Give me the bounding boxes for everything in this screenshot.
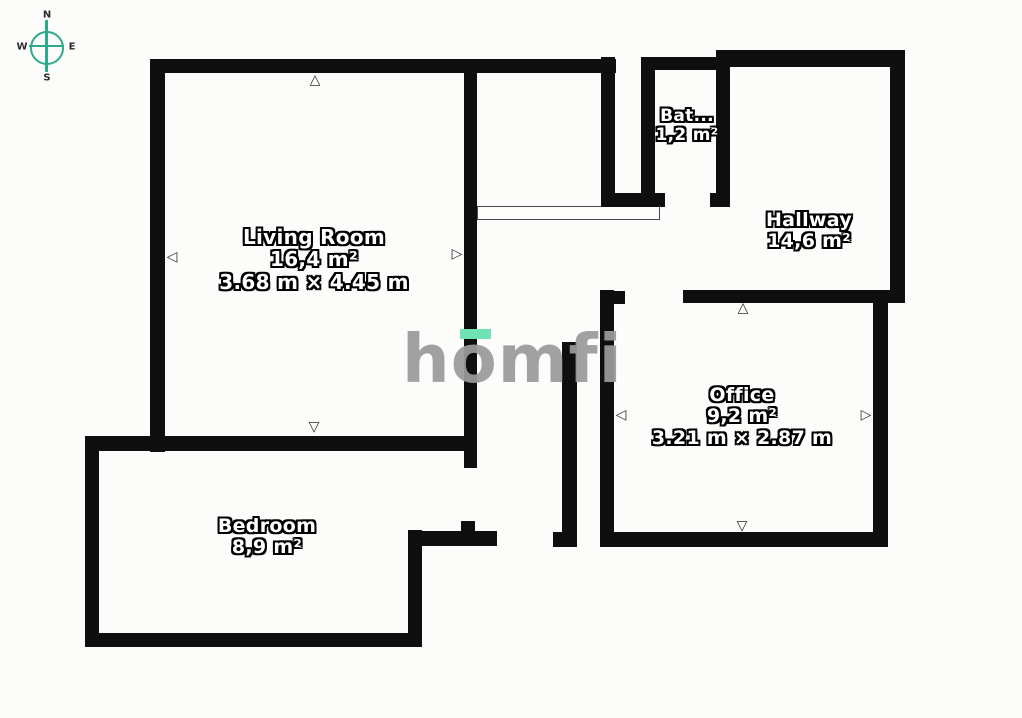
wall-living-room-right: [464, 73, 477, 468]
wall-living-room-bottom: [85, 436, 477, 451]
wall-bathroom-block-left: [601, 57, 615, 207]
room-area: 9,2 m²: [652, 406, 832, 427]
hallway-label: Hallway 14,6 m²: [766, 210, 852, 253]
room-dimensions: 3.68 m × 4.45 m: [219, 271, 408, 293]
office-label: Office 9,2 m² 3.21 m × 2.87 m: [652, 385, 832, 449]
wall-office-right: [873, 290, 888, 547]
homfi-logo: homfi: [402, 326, 623, 393]
wall-hallway-right: [890, 50, 905, 303]
room-name: Office: [652, 385, 832, 406]
room-name: Living Room: [219, 226, 408, 248]
marker-left-icon: ◁: [616, 408, 627, 422]
room-name: Bedroom: [218, 516, 316, 537]
bathroom-label: Bat... 1,2 m²: [656, 107, 719, 145]
room-area: 1,2 m²: [656, 126, 719, 145]
compass-east-label: E: [69, 42, 76, 53]
wall-office-bottom: [600, 532, 888, 547]
wall-corridor-foot: [553, 532, 577, 547]
room-name: Bat...: [656, 107, 719, 126]
closet-outline: [477, 206, 660, 220]
living-room-label: Living Room 16,4 m² 3.68 m × 4.45 m: [219, 226, 408, 293]
room-area: 16,4 m²: [219, 248, 408, 270]
wall-bedroom-right: [408, 530, 422, 647]
compass-ring: [30, 31, 64, 65]
compass-west-label: W: [16, 42, 27, 53]
wall-hallway-top: [723, 50, 905, 67]
room-dimensions: 3.21 m × 2.87 m: [652, 428, 832, 449]
compass-south-label: S: [43, 73, 50, 84]
marker-up-icon: △: [738, 301, 749, 315]
marker-right-icon: ▷: [861, 408, 872, 422]
room-area: 14,6 m²: [766, 231, 852, 252]
wall-bathroom-bottom: [601, 193, 665, 207]
wall-bedroom-door-nub: [461, 521, 475, 531]
marker-up-icon: △: [310, 73, 321, 87]
floor-plan-page: { "compass": { "north": "N", "south": "S…: [0, 0, 1022, 718]
homfi-logo-accent-bar: [460, 329, 491, 339]
wall-living-room-left: [150, 59, 165, 452]
room-area: 8,9 m²: [218, 537, 316, 558]
wall-bedroom-bottom: [85, 633, 422, 647]
marker-down-icon: ▽: [309, 420, 320, 434]
wall-living-room-top: [150, 59, 616, 73]
bedroom-label: Bedroom 8,9 m²: [218, 516, 316, 559]
marker-left-icon: ◁: [167, 250, 178, 264]
wall-bathroom-right-foot: [710, 193, 730, 207]
wall-bedroom-door-bar: [408, 531, 497, 546]
compass-north-label: N: [43, 10, 51, 21]
wall-bathroom-left: [641, 57, 655, 193]
wall-office-left-foot: [600, 291, 625, 304]
marker-right-icon: ▷: [452, 247, 463, 261]
wall-office-top: [683, 290, 905, 303]
room-name: Hallway: [766, 210, 852, 231]
wall-bedroom-left: [85, 436, 99, 647]
compass-rose-icon: N S W E: [8, 8, 88, 88]
marker-down-icon: ▽: [737, 519, 748, 533]
